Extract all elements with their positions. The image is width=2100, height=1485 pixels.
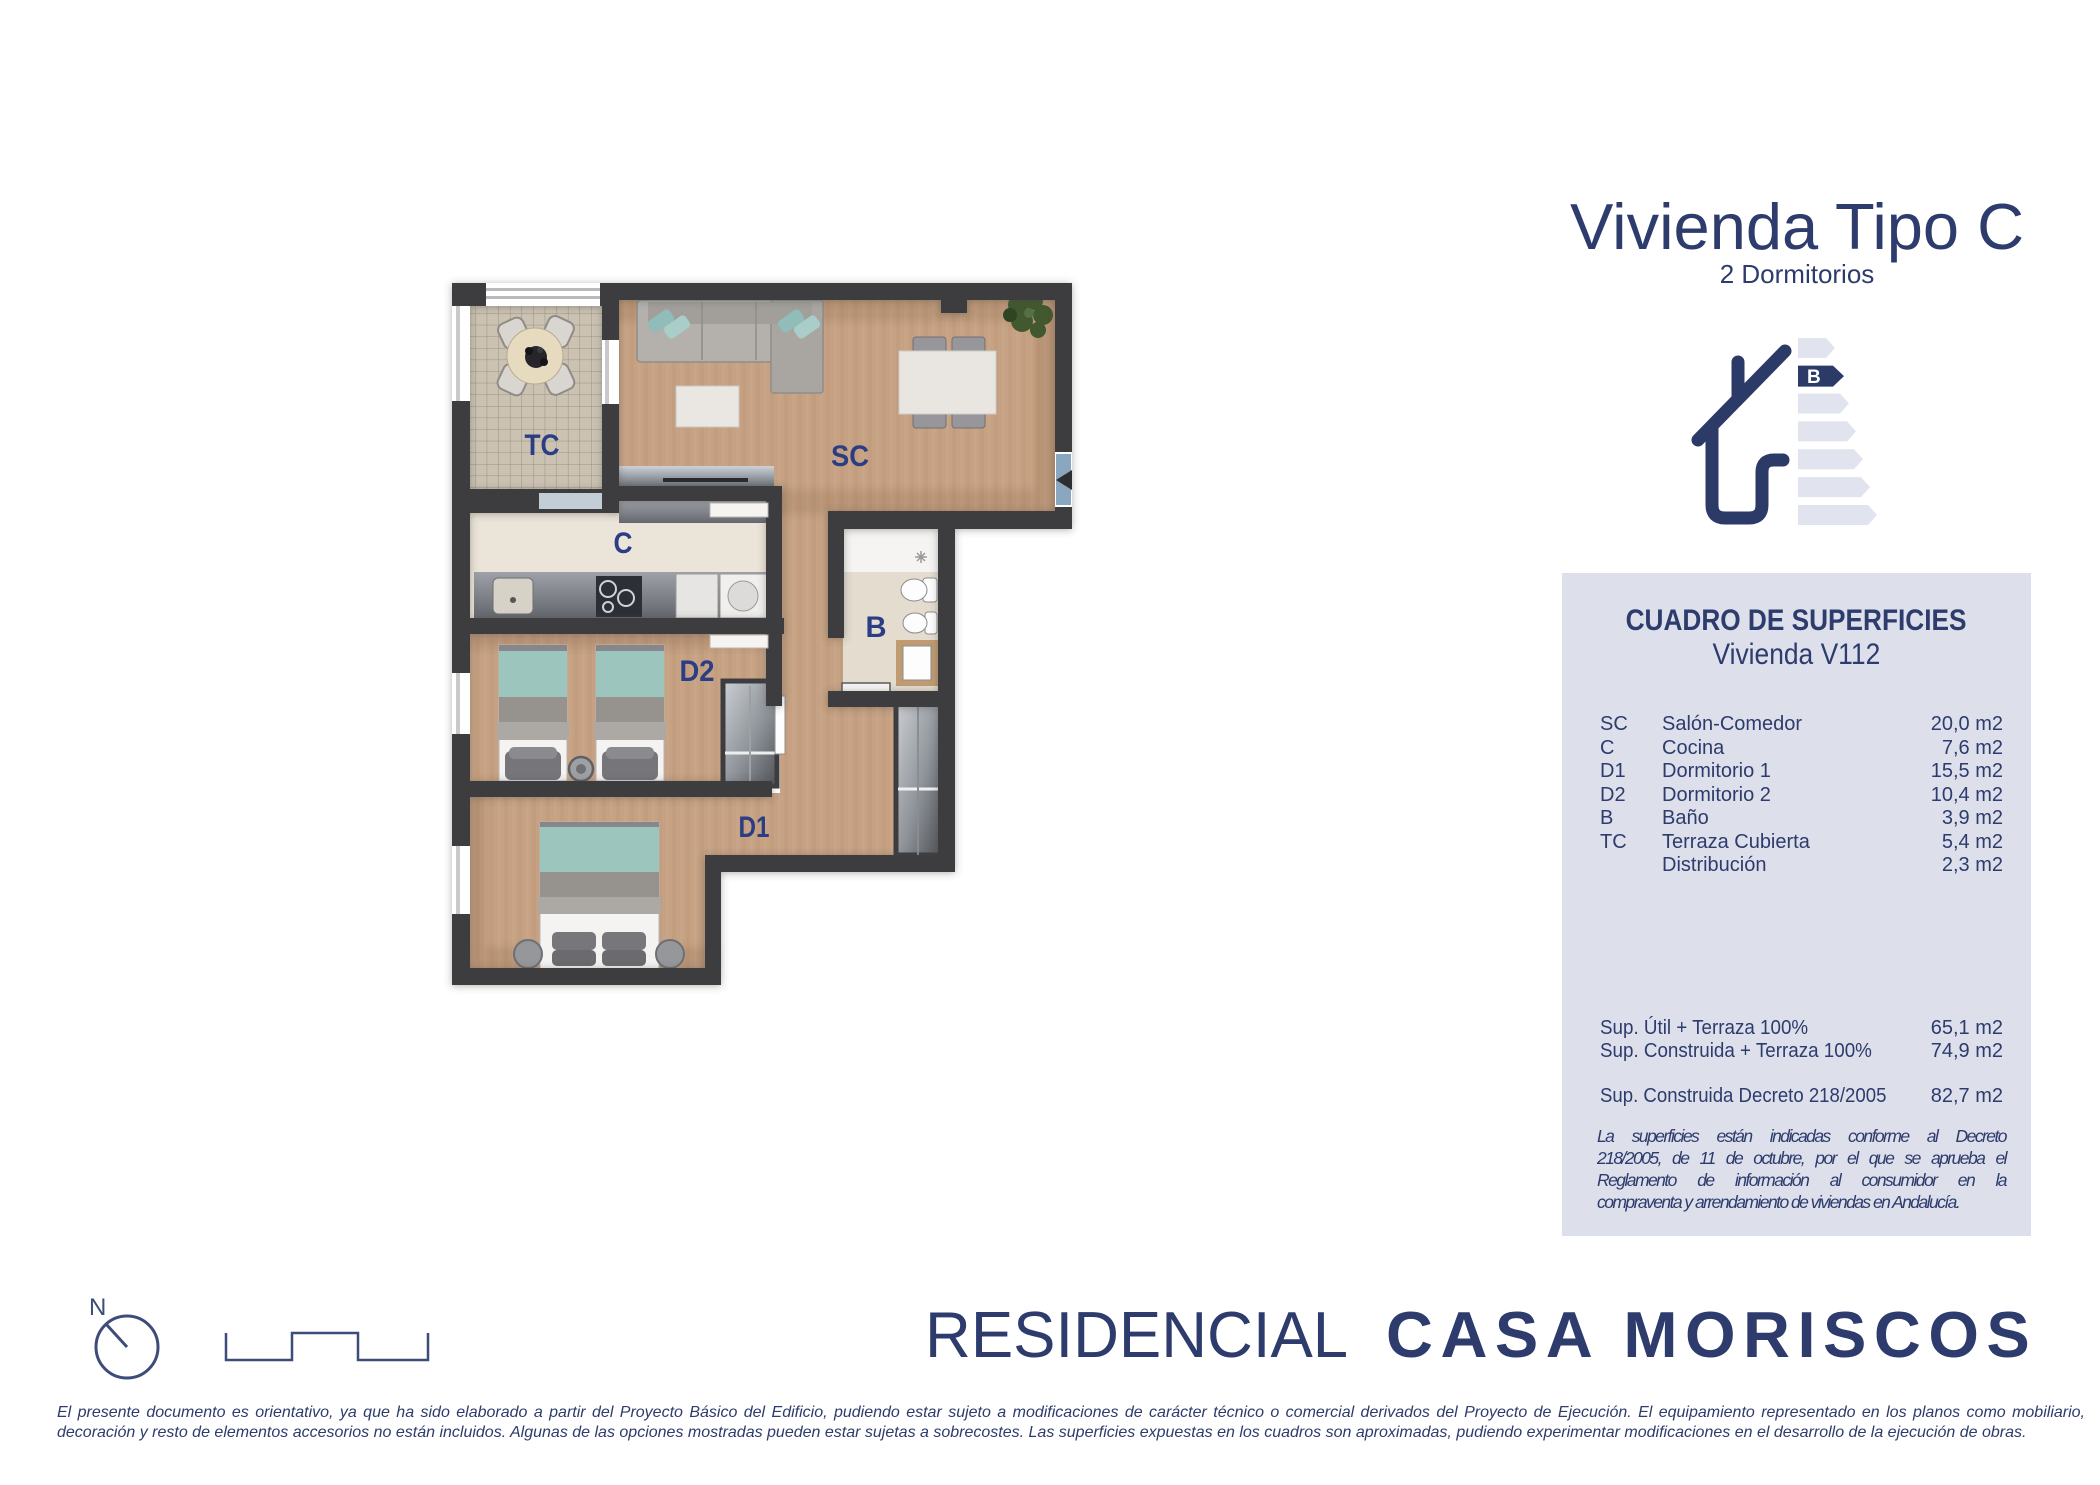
svg-text:B: B <box>866 611 887 644</box>
svg-text:B: B <box>1807 367 1821 388</box>
svg-text:N: N <box>89 1294 106 1321</box>
svg-text:C: C <box>614 527 633 560</box>
svg-text:D2: D2 <box>680 655 715 688</box>
svg-text:D1: D1 <box>739 811 770 844</box>
svg-text:SC: SC <box>831 440 869 473</box>
svg-text:TC: TC <box>525 429 560 462</box>
